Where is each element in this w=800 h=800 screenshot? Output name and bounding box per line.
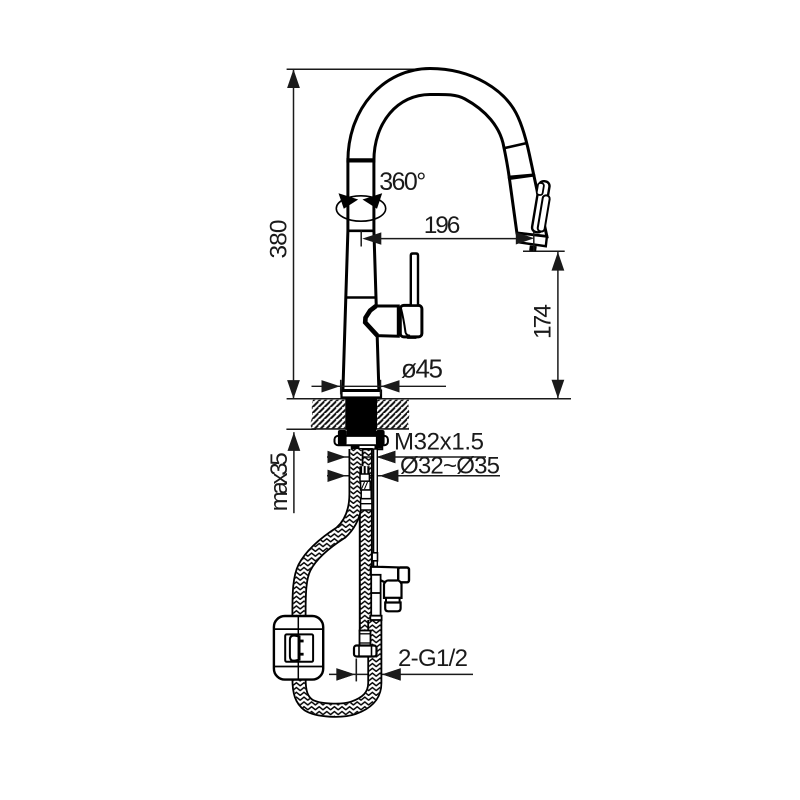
svg-text:ø45: ø45 [401,354,443,384]
svg-text:M32x1.5: M32x1.5 [394,429,484,456]
svg-text:Ø32~Ø35: Ø32~Ø35 [400,453,500,480]
svg-text:360°: 360° [379,168,426,196]
svg-text:380: 380 [266,220,293,259]
svg-text:196: 196 [424,212,461,239]
svg-text:2-G1/2: 2-G1/2 [398,645,468,672]
svg-text:max35: max35 [266,452,293,511]
svg-text:174: 174 [530,304,557,339]
